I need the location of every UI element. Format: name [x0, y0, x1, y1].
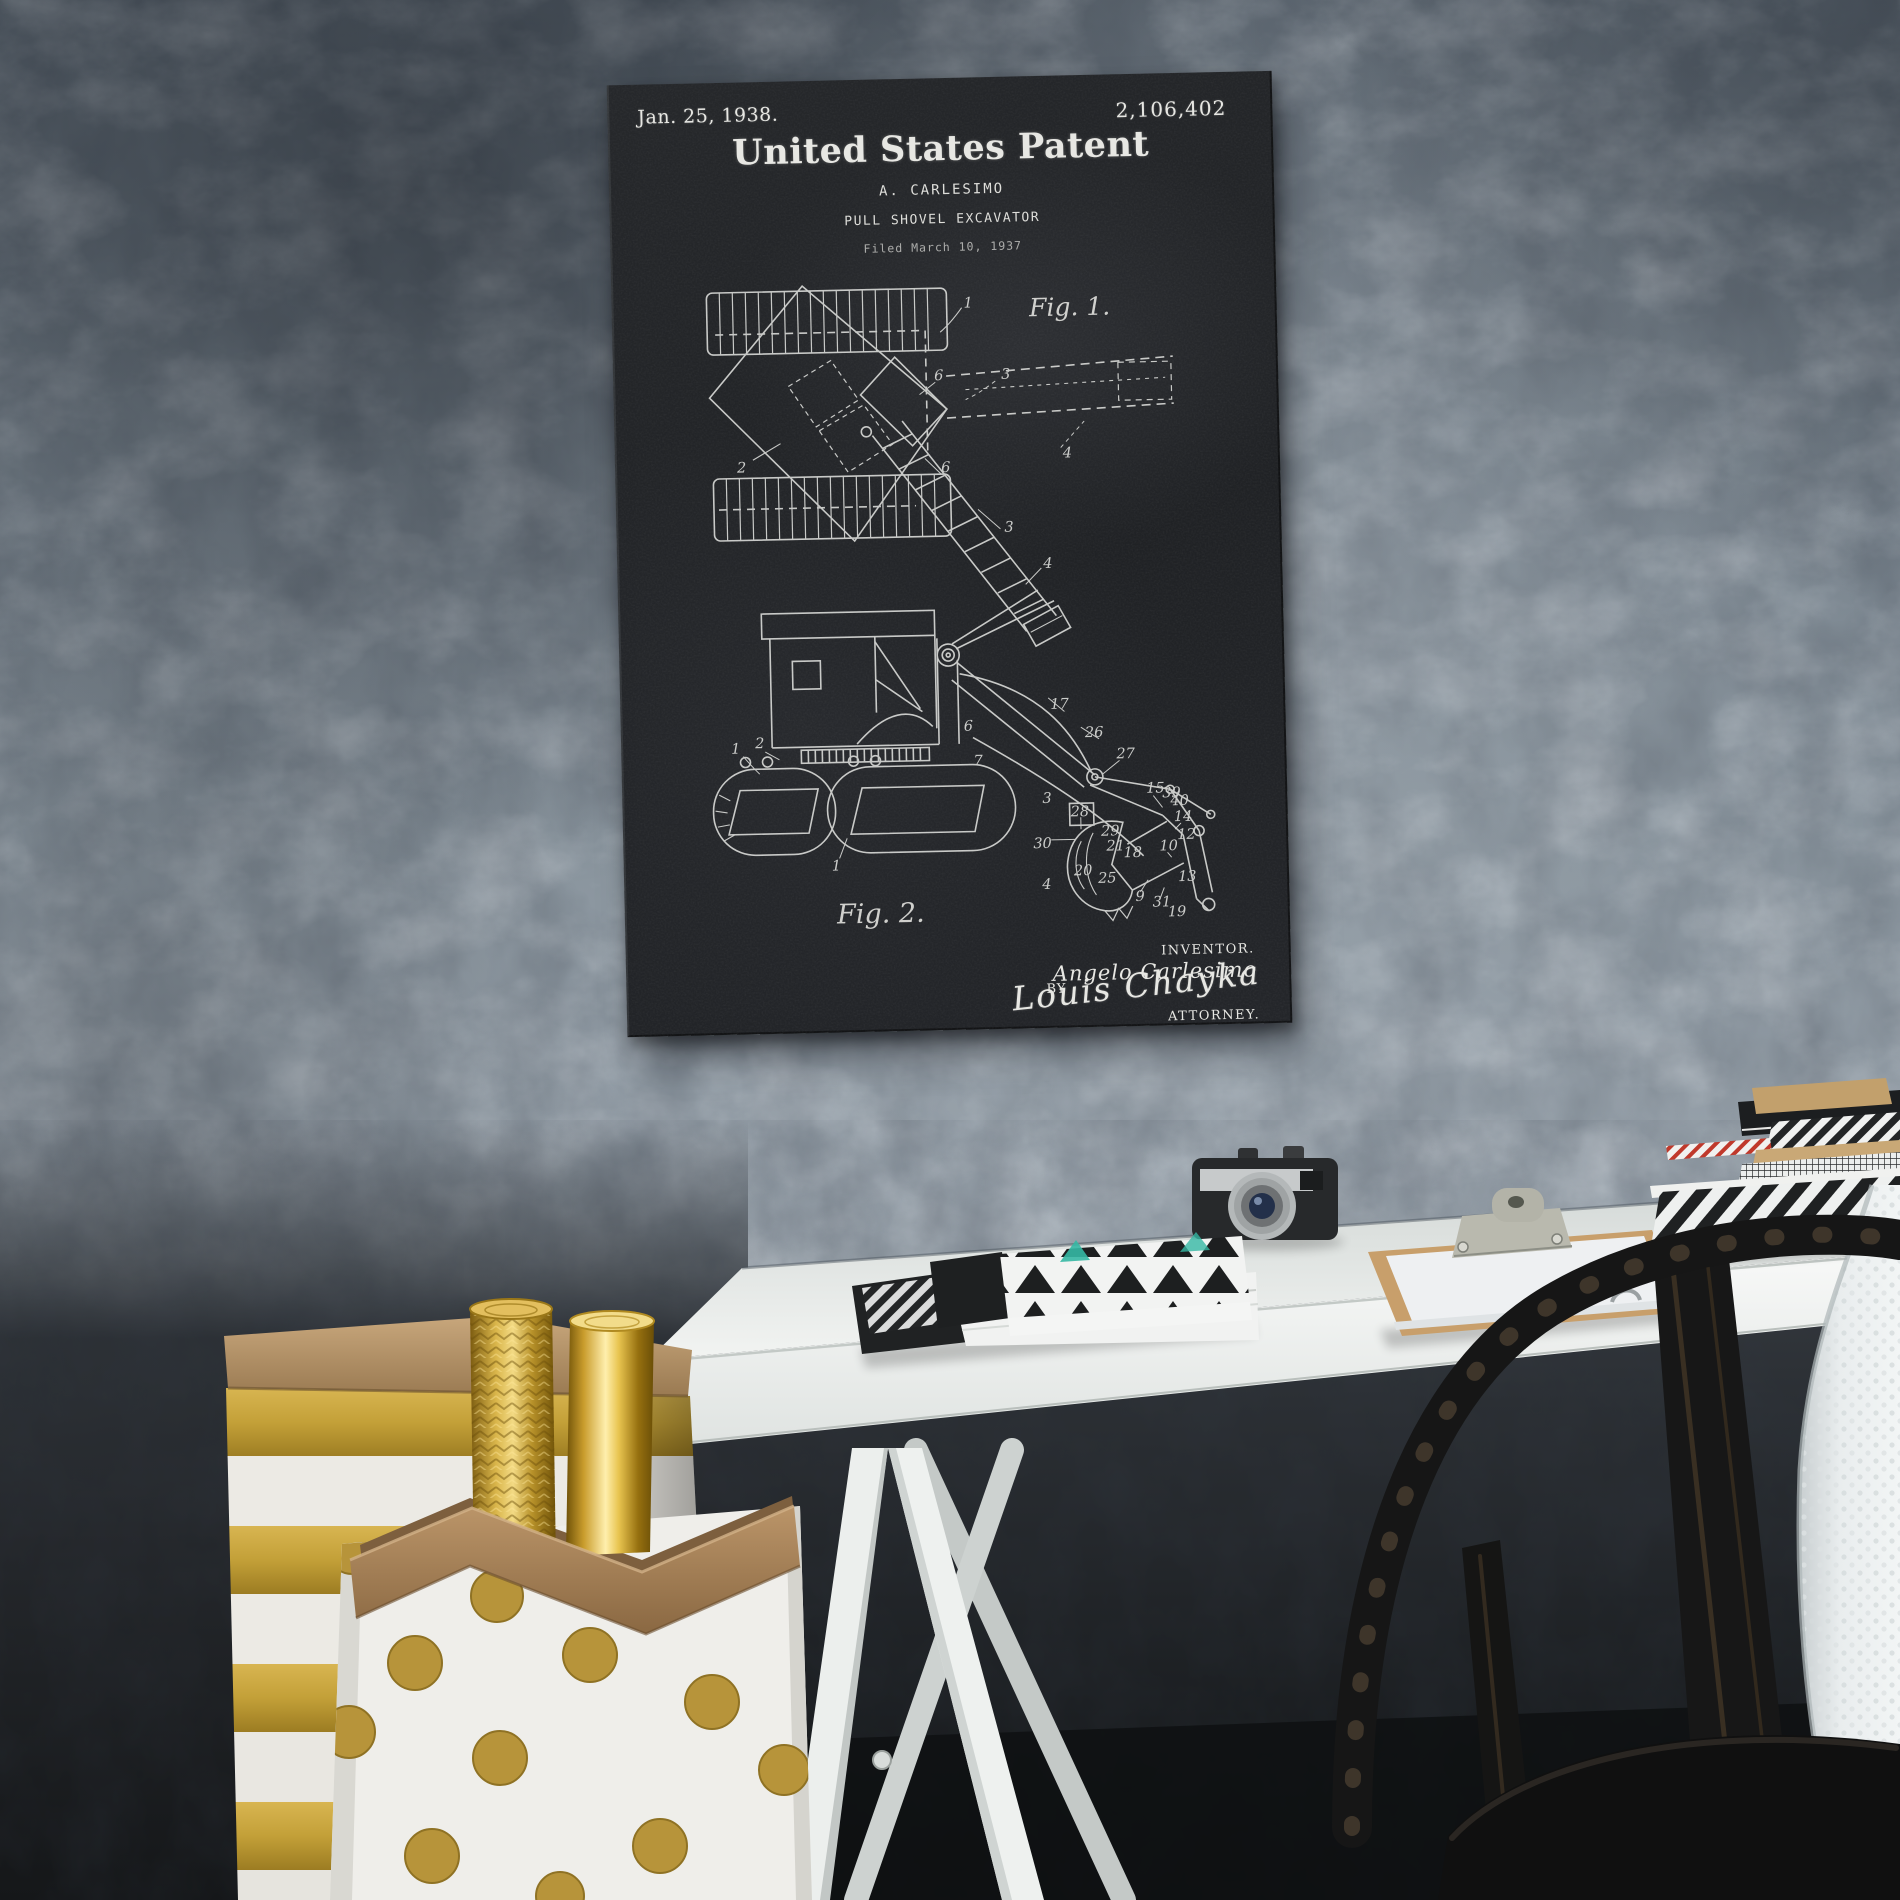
attorney-caption: ATTORNEY.: [1168, 1007, 1260, 1024]
patent-poster: 1 2 6 3 4 6 3 4 1 2 6 7 17 26 27 3 28 30…: [607, 71, 1293, 1037]
camera: [1192, 1146, 1338, 1240]
patent-date: Jan. 25, 1938.: [637, 104, 778, 129]
notebook2-spine: [930, 1252, 1010, 1328]
room-photo: 1 2 6 3 4 6 3 4 1 2 6 7 17 26 27 3 28 30…: [0, 0, 1900, 1900]
patent-number: 2,106,402: [1115, 96, 1226, 122]
smooth-gold-roll: [566, 1311, 654, 1556]
camera-lens: [1228, 1172, 1296, 1240]
trestle-bolt: [873, 1751, 891, 1769]
camera-viewfinder: [1300, 1171, 1323, 1190]
